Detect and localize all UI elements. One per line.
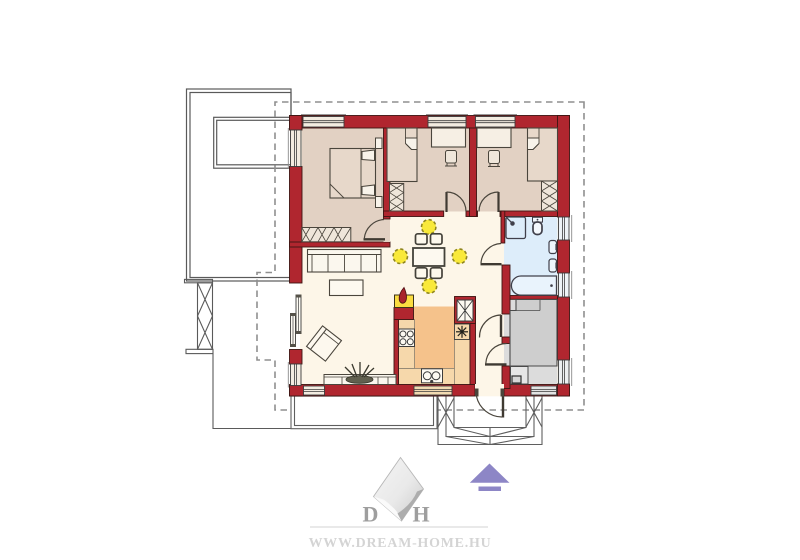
svg-text:H: H bbox=[413, 502, 430, 527]
svg-text:WWW.DREAM-HOME.HU: WWW.DREAM-HOME.HU bbox=[309, 536, 492, 551]
svg-text:D: D bbox=[363, 502, 379, 527]
